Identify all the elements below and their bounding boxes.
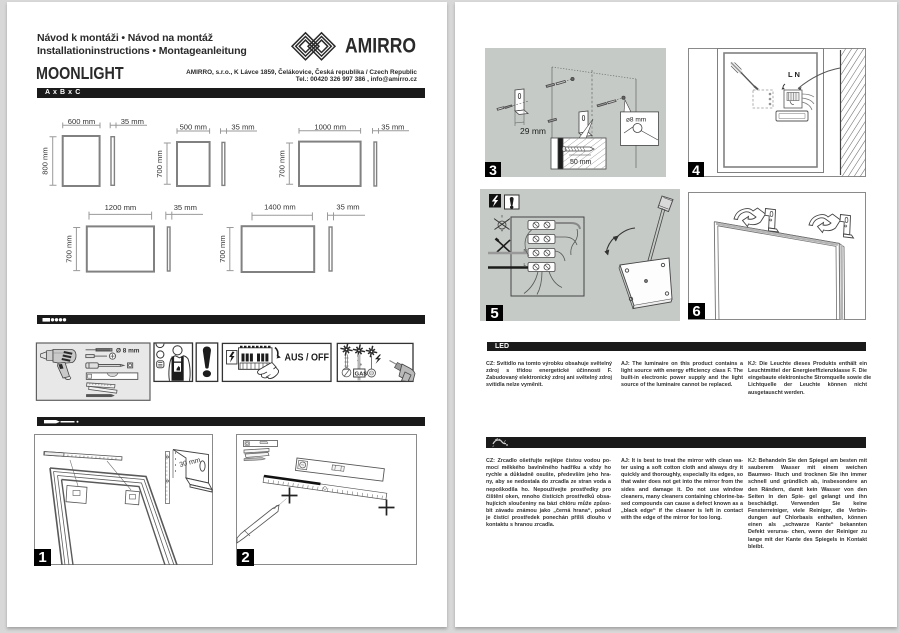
svg-text:35 mm: 35 mm [121,117,144,126]
svg-text:500 mm: 500 mm [180,123,207,132]
svg-text:1200 mm: 1200 mm [105,203,137,212]
svg-text:1400 mm: 1400 mm [264,203,296,212]
svg-text:700 mm: 700 mm [277,150,286,177]
svg-text:1000 mm: 1000 mm [314,122,346,131]
svg-text:⌀8 mm: ⌀8 mm [626,117,646,124]
svg-text:AUS / OFF: AUS / OFF [285,351,330,363]
svg-text:29 mm: 29 mm [520,126,546,136]
svg-text:AMIRRO: AMIRRO [345,35,416,58]
svg-text:L N: L N [788,70,800,79]
svg-text:35 mm: 35 mm [381,122,404,131]
svg-text:35 mm: 35 mm [336,203,359,212]
svg-text:35 mm: 35 mm [231,123,254,132]
svg-text:700 mm: 700 mm [218,235,227,262]
svg-text:800 mm: 800 mm [41,147,50,174]
svg-text:35 mm: 35 mm [174,203,197,212]
svg-text:700 mm: 700 mm [155,150,164,177]
svg-text:700 mm: 700 mm [64,235,73,262]
svg-text:GAS: GAS [355,372,368,378]
svg-text:50 mm: 50 mm [570,159,592,166]
svg-text:Ø 8 mm: Ø 8 mm [116,348,140,355]
svg-text:600 mm: 600 mm [68,117,95,126]
